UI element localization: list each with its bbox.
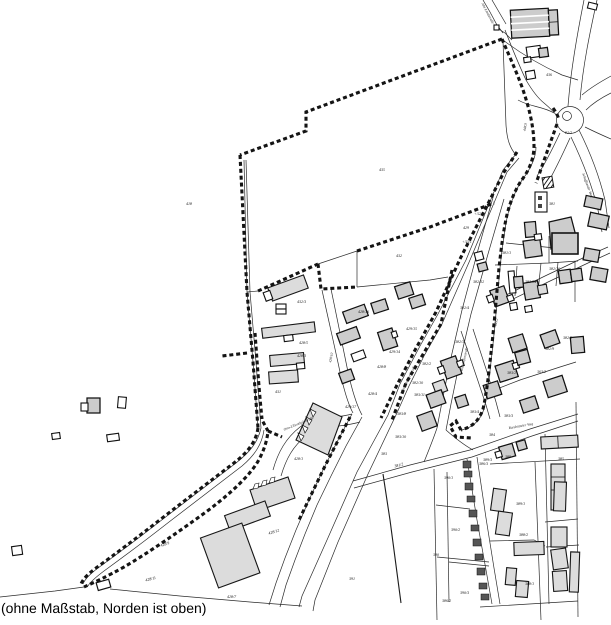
svg-text:383/10: 383/10	[395, 434, 406, 439]
svg-text:390/3: 390/3	[460, 590, 469, 595]
svg-text:429/15: 429/15	[406, 326, 417, 331]
svg-text:428/16: 428/16	[358, 309, 369, 314]
svg-text:383/11: 383/11	[414, 392, 425, 397]
svg-text:428/1: 428/1	[294, 456, 303, 461]
svg-text:383/2: 383/2	[507, 370, 516, 375]
svg-text:418: 418	[186, 201, 192, 206]
svg-text:388/2: 388/2	[519, 532, 528, 537]
svg-text:428/3: 428/3	[297, 353, 306, 358]
svg-text:382/2: 382/2	[422, 361, 431, 366]
svg-text:432/3: 432/3	[297, 299, 306, 304]
svg-text:383/8: 383/8	[397, 411, 406, 416]
svg-text:382/10: 382/10	[412, 380, 423, 385]
svg-text:390/1: 390/1	[444, 475, 453, 480]
svg-text:382/4: 382/4	[460, 305, 469, 310]
svg-text:381: 381	[549, 201, 555, 206]
svg-text:428/4: 428/4	[368, 391, 377, 396]
svg-text:436: 436	[546, 72, 552, 77]
svg-text:383/4: 383/4	[470, 409, 479, 414]
svg-text:383: 383	[381, 451, 387, 456]
svg-text:384: 384	[489, 432, 495, 437]
svg-text:390/2: 390/2	[451, 527, 460, 532]
svg-text:382/12: 382/12	[473, 279, 484, 284]
svg-text:+32/2: +32/2	[474, 211, 484, 216]
svg-text:435: 435	[379, 167, 385, 172]
svg-text:382/3: 382/3	[455, 339, 464, 344]
svg-text:428/5: 428/5	[299, 340, 308, 345]
svg-text:431: 431	[275, 389, 281, 394]
svg-text:388/1: 388/1	[525, 581, 534, 586]
svg-text:363/2: 363/2	[537, 369, 546, 374]
svg-text:432: 432	[396, 253, 402, 258]
svg-text:382/16: 382/16	[549, 266, 560, 271]
svg-text:+33/1: +33/1	[462, 239, 472, 244]
svg-text:386/2: 386/2	[442, 598, 451, 603]
svg-text:(ohne Maßstab, Norden ist oben: (ohne Maßstab, Norden ist oben)	[1, 600, 206, 616]
svg-text:428/7: 428/7	[227, 594, 237, 599]
svg-text:391: 391	[349, 576, 355, 581]
svg-text:385: 385	[558, 456, 564, 461]
svg-text:389: 389	[505, 454, 511, 459]
svg-text:390: 390	[433, 552, 439, 557]
svg-text:386/3: 386/3	[479, 461, 488, 466]
svg-text:382/8: 382/8	[563, 335, 572, 340]
svg-text:389/1: 389/1	[516, 501, 525, 506]
svg-text:382/14: 382/14	[525, 279, 536, 284]
svg-text:381/1: 381/1	[502, 250, 511, 255]
svg-text:429: 429	[463, 225, 469, 230]
svg-text:82/2: 82/2	[565, 130, 572, 135]
svg-text:383/3: 383/3	[504, 413, 513, 418]
svg-text:382/9: 382/9	[545, 346, 554, 351]
svg-text:428/8: 428/8	[377, 364, 386, 369]
svg-text:429/14: 429/14	[389, 349, 400, 354]
svg-text:429/17: 429/17	[345, 404, 357, 409]
